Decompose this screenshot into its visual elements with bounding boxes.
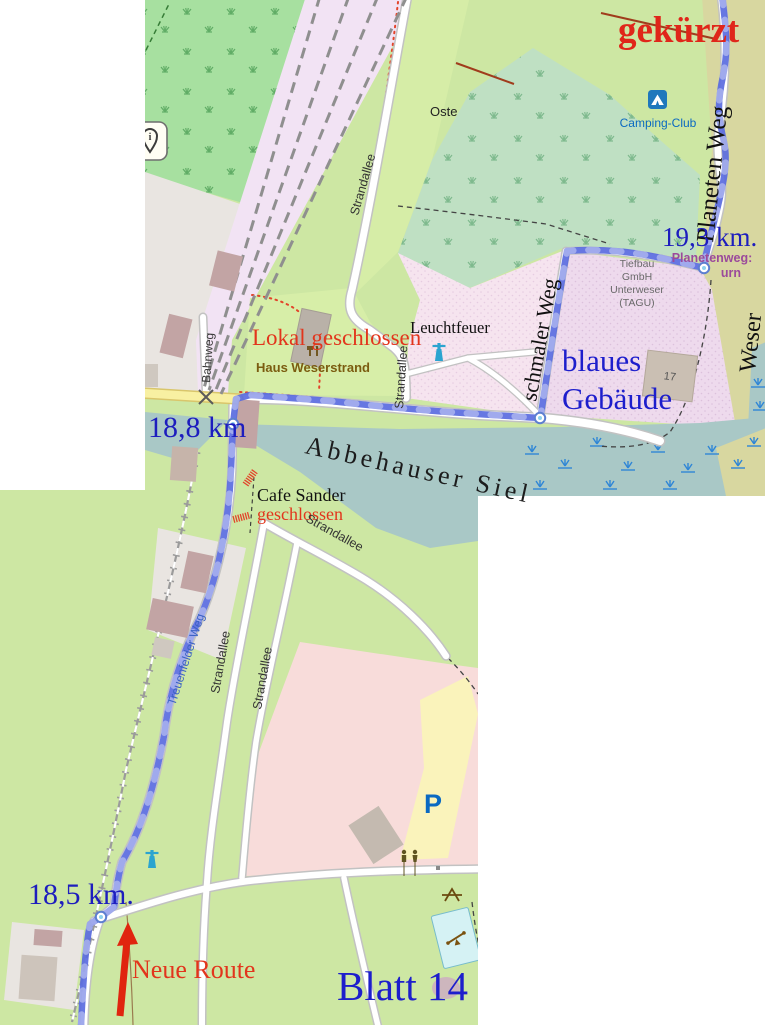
- building: [19, 955, 58, 1001]
- building: [33, 929, 62, 947]
- route-node-18-5: [96, 912, 106, 922]
- map-canvas: 17 i: [0, 0, 765, 1025]
- guidepost-label-line1: Planetenweg:: [672, 251, 753, 265]
- place-label-oste: Oste: [430, 104, 457, 119]
- annotation-blaues-line2: Gebäude: [562, 381, 672, 416]
- parking-label: P: [424, 789, 442, 819]
- poi-label-tiefbau-1: Tiefbau: [620, 258, 655, 270]
- white-cover-top-left: [0, 0, 145, 490]
- marker-dot: [436, 866, 440, 870]
- building-cafe-sander: [170, 446, 198, 482]
- annotation-km-18-8: 18,8 km: [148, 411, 246, 444]
- white-cover-bottom-right: [478, 496, 765, 1025]
- svg-text:i: i: [149, 132, 152, 143]
- annotation-gekuerzt: gekürzt: [618, 10, 740, 51]
- poi-label-tiefbau-4: (TAGU): [619, 297, 654, 309]
- annotation-km-19-3: 19,3 km.: [662, 222, 757, 252]
- route-node-junction: [535, 413, 545, 423]
- annotation-neue-route: Neue Route: [132, 955, 255, 984]
- guidepost-label-line2: urn: [721, 266, 741, 280]
- annotation-blaues-line1: blaues: [562, 343, 641, 378]
- annotation-blatt-14: Blatt 14: [337, 963, 468, 1009]
- annotation-lokal-geschlossen: Lokal geschlossen: [252, 325, 422, 350]
- camping-icon: [648, 90, 667, 109]
- river-label-weser: Weser: [735, 312, 765, 374]
- poi-label-leuchtfeuer: Leuchtfeuer: [410, 318, 490, 337]
- poi-label-tiefbau-2: GmbH: [622, 271, 652, 283]
- poi-label-cafe-sander: Cafe Sander: [257, 485, 345, 505]
- poi-label-camping-club: Camping-Club: [620, 116, 697, 130]
- main-road-yellow: [142, 393, 238, 399]
- poi-status-cafe-geschlossen: geschlossen: [257, 504, 343, 524]
- annotation-km-18-5: 18,5 km.: [28, 878, 134, 911]
- poi-label-haus-weserstrand: Haus Weserstrand: [256, 360, 370, 375]
- poi-label-tiefbau-3: Unterweser: [610, 284, 664, 296]
